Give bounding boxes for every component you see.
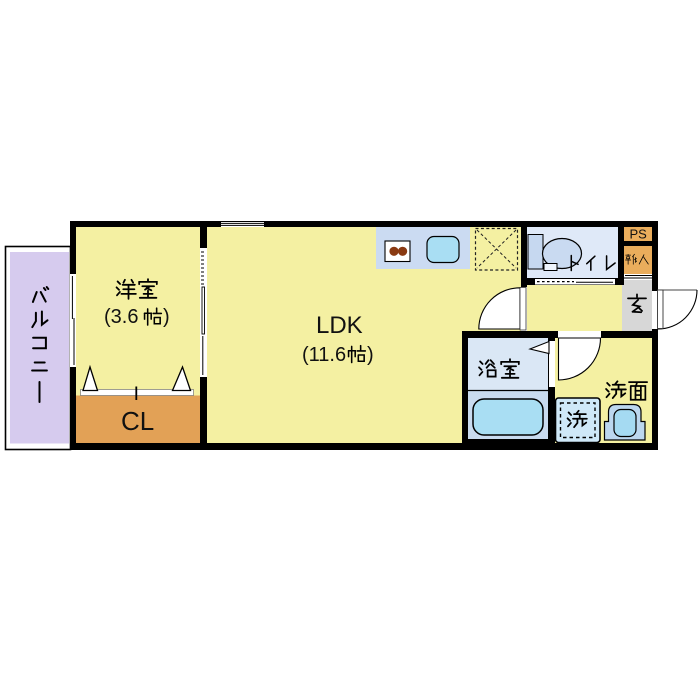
svg-text:): ): [367, 344, 374, 366]
svg-text:(3.6: (3.6: [104, 306, 138, 328]
svg-text:(11.6: (11.6: [302, 344, 346, 366]
svg-text:): ): [163, 306, 170, 328]
svg-text:PS: PS: [630, 227, 648, 242]
svg-text:CL: CL: [121, 406, 154, 436]
svg-text:LDK: LDK: [316, 312, 363, 339]
